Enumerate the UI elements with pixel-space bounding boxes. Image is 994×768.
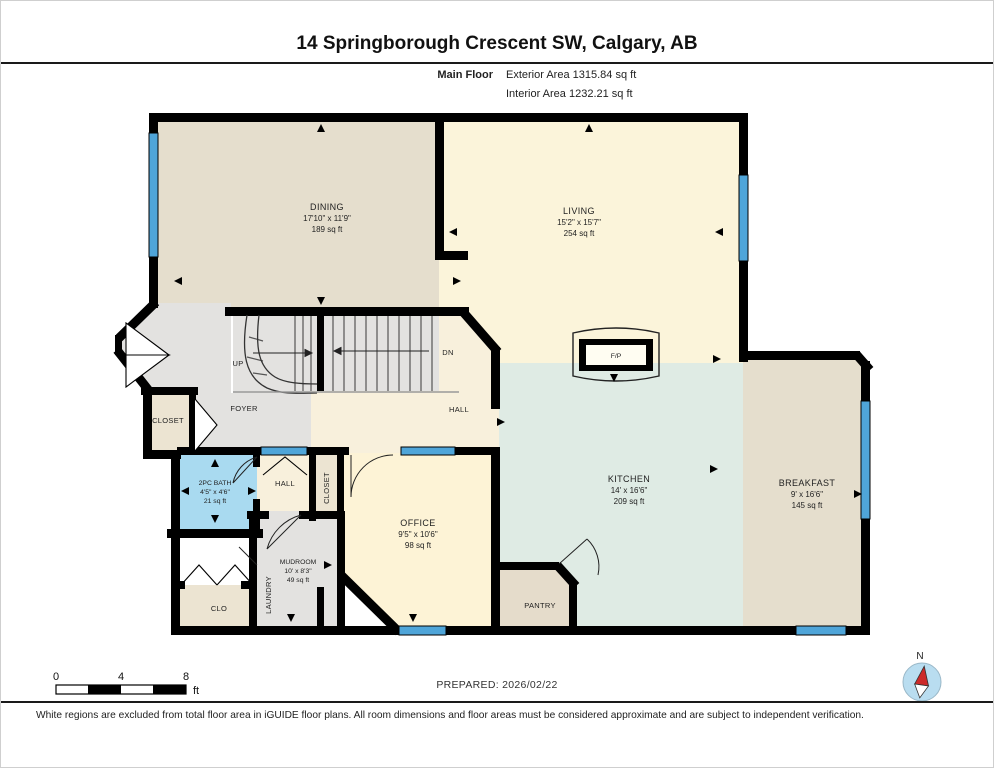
living-dims: 15'2" x 15'7" <box>557 218 601 227</box>
compass-north-label: N <box>916 651 923 662</box>
kitchen-area: 209 sq ft <box>614 497 645 506</box>
living-area: 254 sq ft <box>564 229 595 238</box>
kitchen-label: KITCHEN <box>608 474 650 484</box>
bath-dims: 4'5" x 4'6" <box>200 489 230 496</box>
living-room-area <box>439 117 743 363</box>
living-label: LIVING <box>563 206 595 216</box>
mudroom-area: 49 sq ft <box>287 577 309 584</box>
hall-upper-label: HALL <box>449 405 469 414</box>
breakfast-label: BREAKFAST <box>779 478 836 488</box>
mudroom-label: MUDROOM <box>280 559 317 566</box>
stairs-down-label: DN <box>442 348 453 357</box>
compass-icon: N <box>903 651 941 701</box>
office-label: OFFICE <box>400 518 435 528</box>
dining-label: DINING <box>310 202 344 212</box>
footer-divider <box>1 701 993 703</box>
stairs-up-label: UP <box>232 359 243 368</box>
dining-room-area <box>156 117 443 316</box>
floor-plan-svg: F/P DINING 17'10" x 11' <box>1 1 994 768</box>
dining-area: 189 sq ft <box>312 225 343 234</box>
office-area: 98 sq ft <box>405 541 432 550</box>
floor-plan-page: 14 Springborough Crescent SW, Calgary, A… <box>0 0 994 768</box>
kitchen-dims: 14' x 16'6" <box>611 486 648 495</box>
vestibule-wall <box>115 335 122 355</box>
bath-label: 2PC BATH <box>199 480 232 487</box>
laundry-label: LAUNDRY <box>264 576 273 614</box>
prepared-date: PREPARED: 2026/02/22 <box>1 679 993 691</box>
closet-entry-label: CLOSET <box>152 416 184 425</box>
clo-label: CLO <box>211 604 227 613</box>
fireplace-label: F/P <box>611 353 622 360</box>
office-dims: 9'5" x 10'6" <box>398 530 438 539</box>
disclaimer-text: White regions are excluded from total fl… <box>36 710 864 721</box>
window <box>149 133 158 257</box>
foyer-label: FOYER <box>230 404 258 413</box>
bath-area: 21 sq ft <box>204 498 226 505</box>
window <box>739 175 748 261</box>
mudroom-dims: 10' x 8'3" <box>284 568 312 575</box>
pantry-label: PANTRY <box>524 601 556 610</box>
hall-lower-label: HALL <box>275 479 295 488</box>
window <box>399 626 446 635</box>
window <box>796 626 846 635</box>
window <box>861 401 870 519</box>
window <box>261 447 307 455</box>
window <box>401 447 455 455</box>
breakfast-dims: 9' x 16'6" <box>791 490 823 499</box>
closet-hall-label: CLOSET <box>322 472 331 504</box>
breakfast-area: 145 sq ft <box>792 501 823 510</box>
dining-dims: 17'10" x 11'9" <box>303 214 351 223</box>
